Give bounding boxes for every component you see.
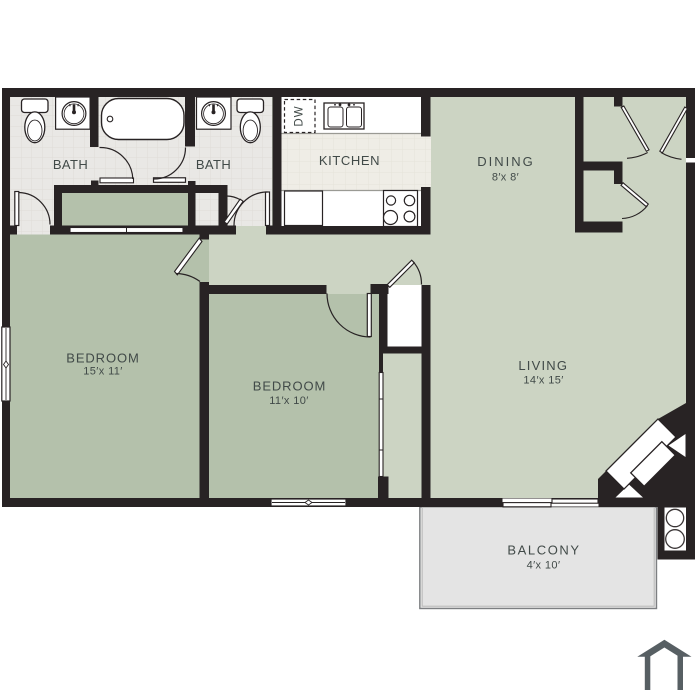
svg-text:14′x 15′: 14′x 15′ xyxy=(523,374,563,386)
svg-text:DW: DW xyxy=(294,105,306,126)
svg-text:BEDROOM: BEDROOM xyxy=(66,351,139,366)
svg-text:8′x 8′: 8′x 8′ xyxy=(492,171,519,183)
svg-text:BATH: BATH xyxy=(196,157,231,172)
svg-text:KITCHEN: KITCHEN xyxy=(319,153,380,168)
svg-text:BEDROOM: BEDROOM xyxy=(253,379,326,394)
svg-text:11′x 10′: 11′x 10′ xyxy=(269,395,309,407)
svg-text:15′x 11′: 15′x 11′ xyxy=(83,366,123,378)
svg-text:4′x 10′: 4′x 10′ xyxy=(527,560,561,572)
svg-text:LIVING: LIVING xyxy=(518,358,568,373)
svg-text:BATH: BATH xyxy=(53,157,88,172)
svg-text:BALCONY: BALCONY xyxy=(507,543,580,558)
svg-text:DINING: DINING xyxy=(477,154,535,169)
